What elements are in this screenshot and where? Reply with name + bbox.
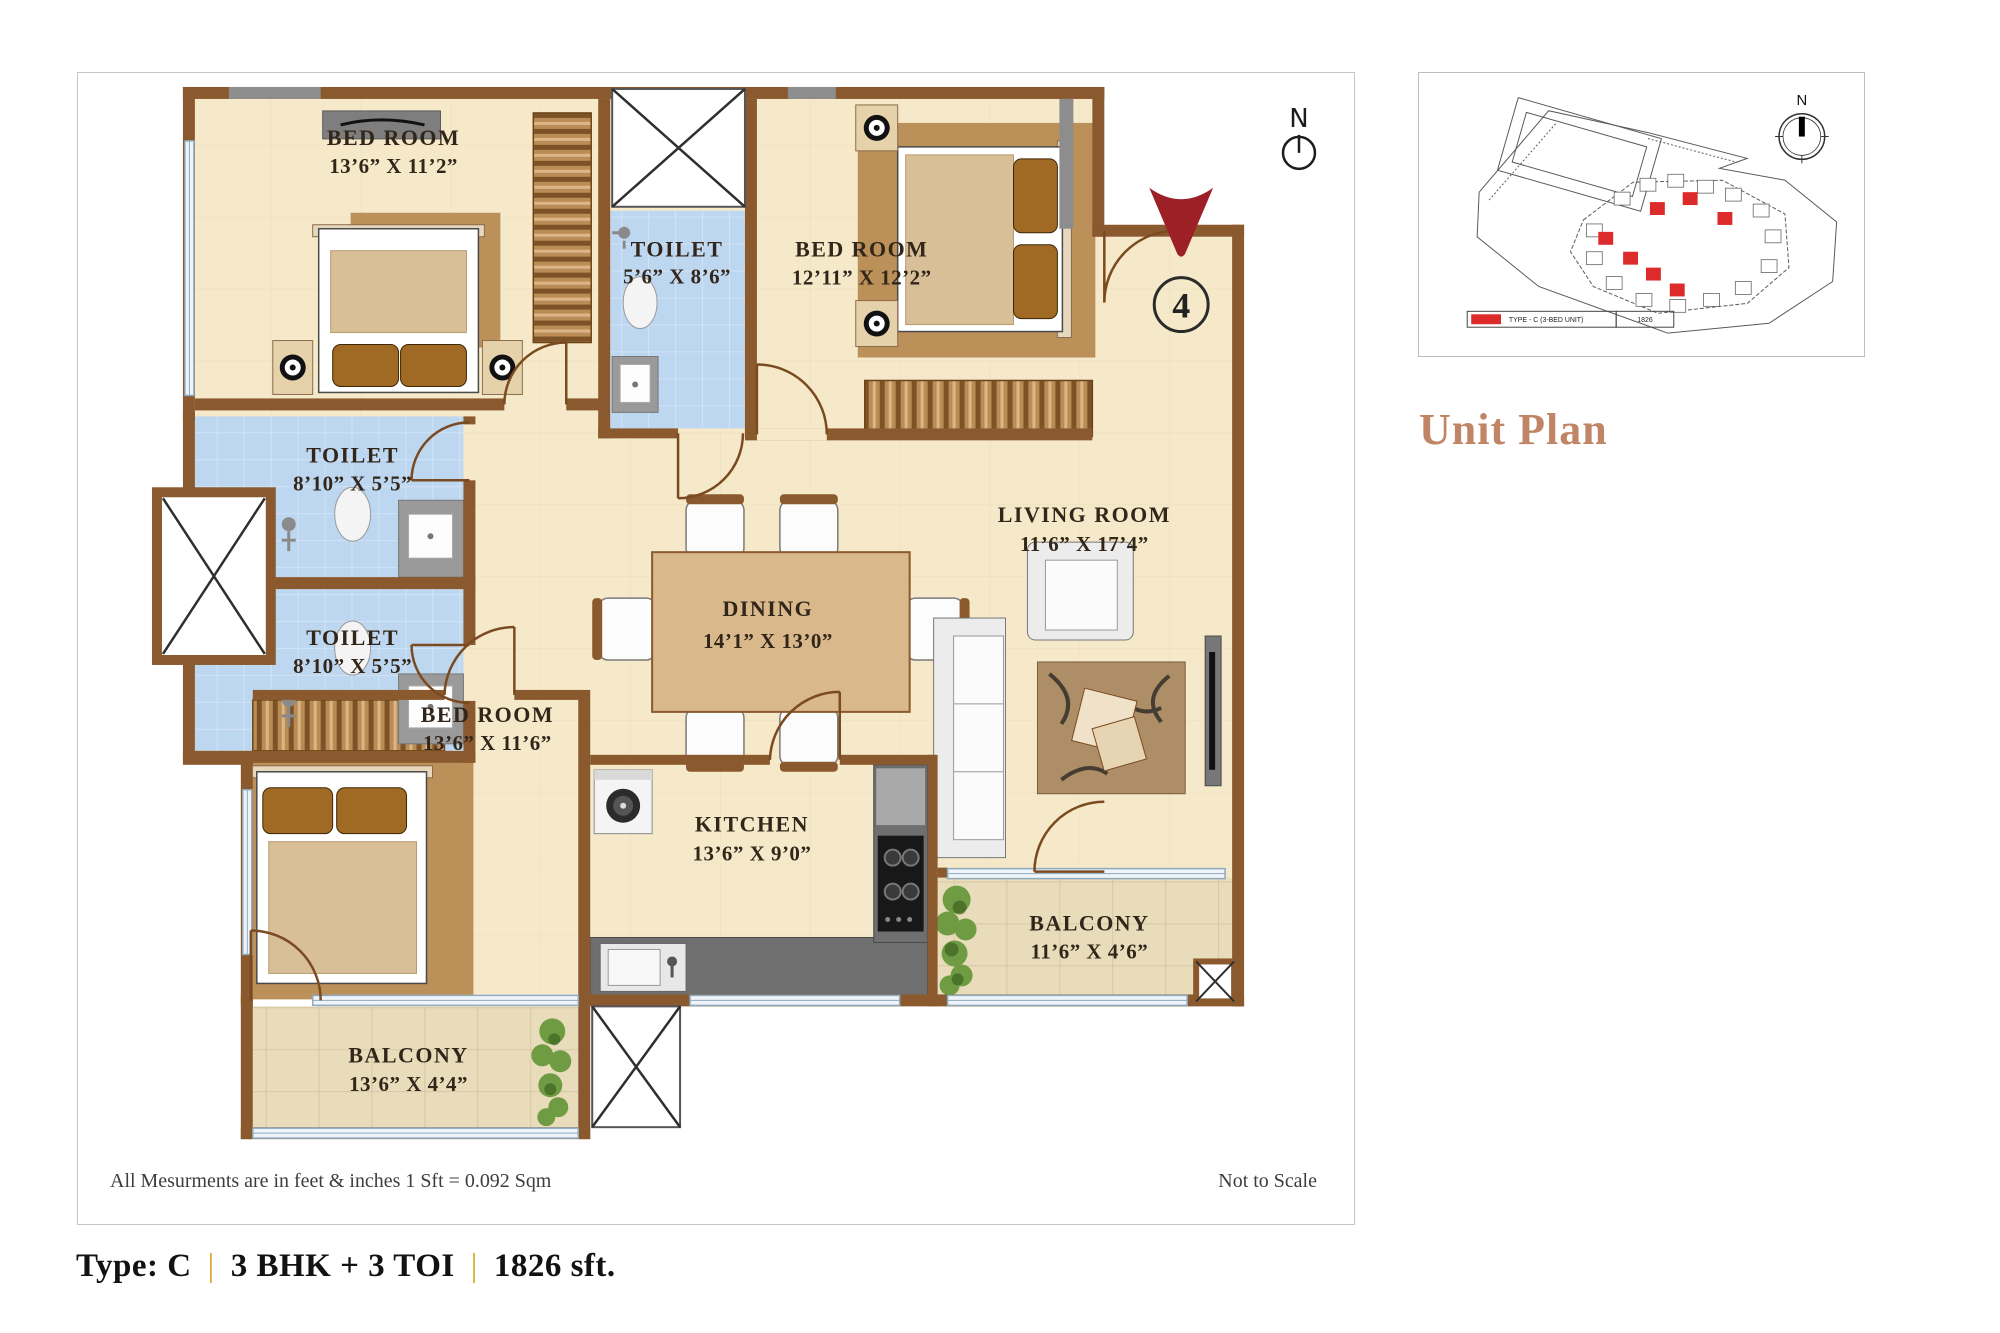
room-dims: 12’11” X 12’2” (792, 266, 932, 290)
floor-plan-drawing: BED ROOM 13’6” X 11’2” TOILET 5’6” X 8’6… (78, 73, 1354, 1224)
measurements-footnote: All Mesurments are in feet & inches 1 Sf… (110, 1170, 552, 1192)
balcony-right-floor (938, 878, 1232, 995)
site-legend: TYPE - C (3-BED UNIT) 1826 (1467, 311, 1674, 327)
north-compass-icon: N (1775, 93, 1829, 164)
room-label: LIVING ROOM (998, 502, 1171, 527)
entry-number: 4 (1172, 286, 1190, 326)
scale-note: Not to Scale (1218, 1170, 1317, 1192)
wc (335, 487, 371, 541)
room-label: BED ROOM (795, 237, 928, 262)
legend-swatch (1471, 314, 1501, 324)
room-label: BED ROOM (421, 702, 554, 727)
north-compass-icon: N (1283, 104, 1315, 169)
unit-type-label: Type: C (76, 1248, 192, 1284)
hob (878, 836, 924, 932)
unit-plan-heading: Unit Plan (1419, 404, 1608, 455)
bedroom-1-wardrobe (533, 113, 591, 343)
room-label: TOILET (631, 237, 724, 262)
north-label: N (1289, 104, 1308, 134)
room-label: TOILET (306, 625, 399, 650)
bedroom-3-furniture (249, 762, 474, 1000)
room-dims: 5’6” X 8’6” (623, 265, 731, 289)
unit-area-label: 1826 sft. (494, 1248, 616, 1284)
room-dims: 14’1” X 13’0” (703, 629, 833, 653)
room-label: BALCONY (1029, 911, 1149, 936)
room-dims: 8’10” X 5’5” (293, 654, 412, 678)
fridge (876, 768, 926, 826)
room-label: BALCONY (348, 1042, 468, 1067)
room-label: KITCHEN (695, 812, 809, 837)
separator: | (471, 1248, 478, 1284)
site-map-drawing: N TYPE - C (3-BED UNIT) 1826 (1419, 73, 1864, 356)
legend-label: TYPE - C (3-BED UNIT) (1509, 317, 1583, 324)
room-label: TOILET (306, 442, 399, 467)
bedroom-2-wardrobe (865, 380, 1093, 436)
page: BED ROOM 13’6” X 11’2” TOILET 5’6” X 8’6… (0, 0, 2000, 1333)
separator: | (208, 1248, 215, 1284)
unit-config-label: 3 BHK + 3 TOI (231, 1248, 455, 1284)
north-label: N (1796, 93, 1807, 109)
room-label: BED ROOM (327, 125, 460, 150)
site-outline (1477, 98, 1836, 334)
room-label: DINING (723, 596, 814, 621)
room-dims: 13’6” X 9’0” (692, 842, 811, 866)
room-dims: 13’6” X 11’6” (423, 731, 552, 755)
room-dims: 11’6” X 4’6” (1030, 939, 1148, 963)
room-dims: 13’6” X 11’2” (329, 154, 458, 178)
room-dims: 8’10” X 5’5” (293, 471, 412, 495)
room-dims: 13’6” X 4’4” (349, 1072, 468, 1096)
unit-type-caption: Type: C|3 BHK + 3 TOI|1826 sft. (76, 1248, 616, 1285)
room-dims: 11’6” X 17’4” (1020, 532, 1149, 556)
legend-value: 1826 (1637, 317, 1653, 324)
site-map-thumbnail: N TYPE - C (3-BED UNIT) 1826 (1418, 72, 1865, 357)
floor-plan-panel: BED ROOM 13’6” X 11’2” TOILET 5’6” X 8’6… (77, 72, 1355, 1225)
door-gap (757, 428, 827, 440)
